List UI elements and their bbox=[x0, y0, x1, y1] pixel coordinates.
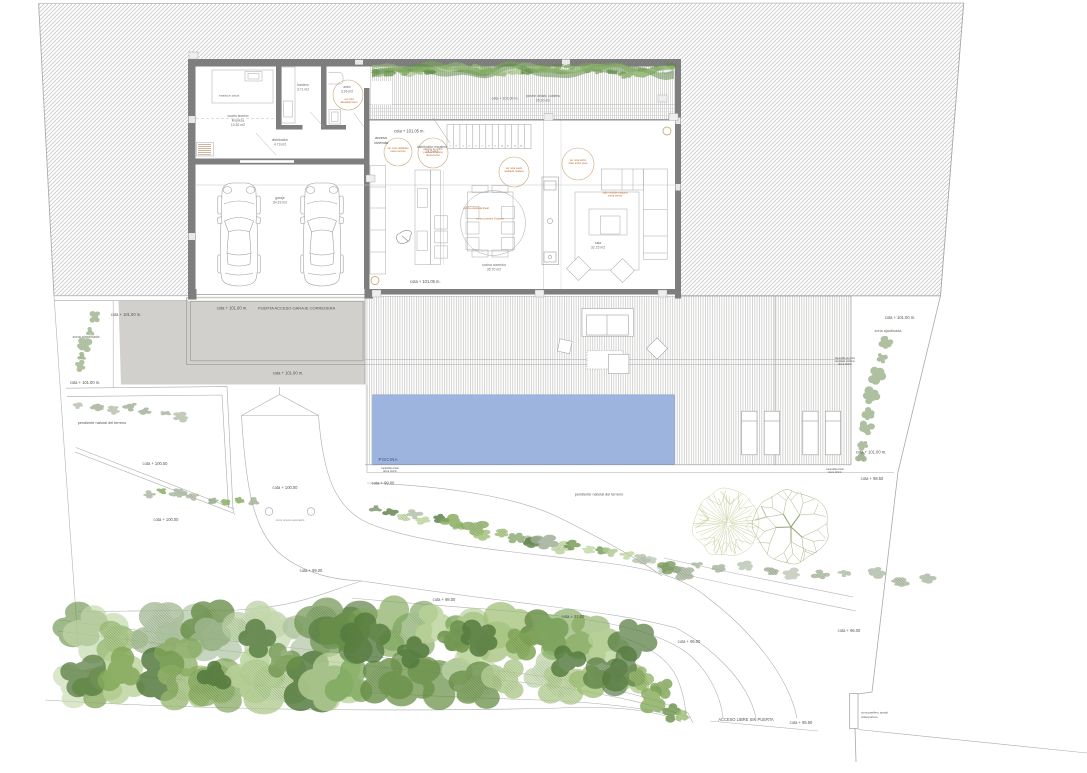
svg-text:cota + 101.00 m.: cota + 101.00 m. bbox=[111, 312, 142, 317]
svg-text:cota + 99.00: cota + 99.00 bbox=[372, 481, 395, 486]
svg-text:4.73 m2: 4.73 m2 bbox=[274, 143, 286, 147]
svg-text:11.5 m2: 11.5 m2 bbox=[426, 150, 438, 154]
svg-text:falso techo yeso: falso techo yeso bbox=[569, 161, 588, 165]
svg-text:cocina comedor: cocina comedor bbox=[482, 263, 507, 267]
svg-text:ACCESO LIBRE SIN PUERTA: ACCESO LIBRE SIN PUERTA bbox=[718, 717, 774, 722]
svg-text:cota + 100.00: cota + 100.00 bbox=[273, 485, 299, 490]
svg-text:cota + 101.05 m.: cota + 101.05 m. bbox=[394, 129, 425, 134]
svg-text:cierre remoto automatico: cierre remoto automatico bbox=[276, 518, 305, 522]
svg-text:distribuidor escalera: distribuidor escalera bbox=[417, 145, 447, 149]
svg-text:cota + 98.50: cota + 98.50 bbox=[861, 476, 884, 481]
svg-text:pendiente natural del terreno: pendiente natural del terreno bbox=[575, 493, 624, 497]
svg-text:porche delant. cubierto: porche delant. cubierto bbox=[526, 94, 561, 98]
svg-text:zona paellero postal: zona paellero postal bbox=[861, 711, 888, 715]
svg-text:cocina equipada lineal: cocina equipada lineal bbox=[463, 206, 489, 210]
svg-text:cota + 101.00 m.: cota + 101.00 m. bbox=[856, 450, 887, 455]
svg-text:cota + 95.50: cota + 95.50 bbox=[790, 720, 813, 725]
svg-text:suelo tecnico: suelo tecnico bbox=[390, 149, 406, 153]
svg-text:cota + 101.00 m.: cota + 101.00 m. bbox=[492, 97, 519, 101]
svg-text:sala: sala bbox=[595, 241, 601, 245]
svg-text:aseo: aseo bbox=[343, 85, 350, 89]
svg-text:3.26 m2: 3.26 m2 bbox=[341, 90, 353, 94]
svg-text:zona ajardinada: zona ajardinada bbox=[72, 335, 100, 339]
svg-text:cota + 98.00: cota + 98.00 bbox=[433, 597, 456, 602]
svg-text:10.52 m2: 10.52 m2 bbox=[231, 123, 245, 127]
svg-text:instalacion placas: instalacion placas bbox=[219, 94, 240, 98]
svg-text:34.19 m2: 34.19 m2 bbox=[273, 201, 287, 205]
svg-text:altura 110cm: altura 110cm bbox=[383, 470, 397, 473]
svg-text:cota + 99.00: cota + 99.00 bbox=[300, 568, 323, 573]
svg-text:alicatado bano: alicatado bano bbox=[341, 100, 358, 104]
svg-text:cota + 97.00: cota + 97.00 bbox=[562, 614, 585, 619]
svg-text:acabado madera: acabado madera bbox=[504, 169, 524, 173]
svg-text:altura 110cm: altura 110cm bbox=[838, 363, 852, 366]
svg-text:zona ajardinada: zona ajardinada bbox=[874, 329, 902, 333]
svg-text:pendiente natural del terreno: pendiente natural del terreno bbox=[78, 421, 127, 425]
svg-text:cota + 101.00 m.: cota + 101.00 m. bbox=[273, 371, 304, 376]
svg-text:cota + 96.00: cota + 96.00 bbox=[678, 639, 701, 644]
svg-text:cota + 100.00: cota + 100.00 bbox=[154, 517, 180, 522]
svg-text:mesa centro: mesa centro bbox=[608, 194, 623, 198]
svg-text:cota + 101.00 m.: cota + 101.00 m. bbox=[217, 306, 248, 311]
svg-text:distribuidor: distribuidor bbox=[272, 138, 289, 142]
svg-text:25.10 m2: 25.10 m2 bbox=[536, 99, 550, 103]
svg-text:acceso: acceso bbox=[375, 136, 387, 140]
svg-text:videoportero: videoportero bbox=[861, 715, 878, 719]
svg-text:limpieza: limpieza bbox=[232, 119, 245, 123]
svg-text:cota + 96.00: cota + 96.00 bbox=[838, 628, 861, 633]
svg-text:cota + 101.05 m.: cota + 101.05 m. bbox=[410, 279, 441, 284]
svg-text:cota + 101.00 m.: cota + 101.00 m. bbox=[885, 315, 916, 320]
svg-text:32.15 m2: 32.15 m2 bbox=[591, 246, 605, 250]
svg-text:3.71 m2: 3.71 m2 bbox=[297, 88, 309, 92]
svg-text:35.70 m2: 35.70 m2 bbox=[487, 268, 501, 272]
svg-text:PISCINA: PISCINA bbox=[379, 457, 398, 462]
svg-text:PUERTA ACCESO GARAJE CORREDERA: PUERTA ACCESO GARAJE CORREDERA bbox=[258, 306, 336, 311]
svg-text:vivienda: vivienda bbox=[374, 141, 389, 145]
svg-text:cuarto tecnico: cuarto tecnico bbox=[227, 114, 248, 118]
svg-text:cota + 101.00 m.: cota + 101.00 m. bbox=[70, 380, 101, 385]
svg-text:garaje: garaje bbox=[275, 196, 285, 200]
svg-text:trastero: trastero bbox=[297, 83, 309, 87]
svg-text:altura 110cm: altura 110cm bbox=[828, 471, 842, 474]
svg-text:cota + 100.50: cota + 100.50 bbox=[143, 461, 169, 466]
svg-text:mesa comedor 8 plazas: mesa comedor 8 plazas bbox=[476, 217, 504, 221]
